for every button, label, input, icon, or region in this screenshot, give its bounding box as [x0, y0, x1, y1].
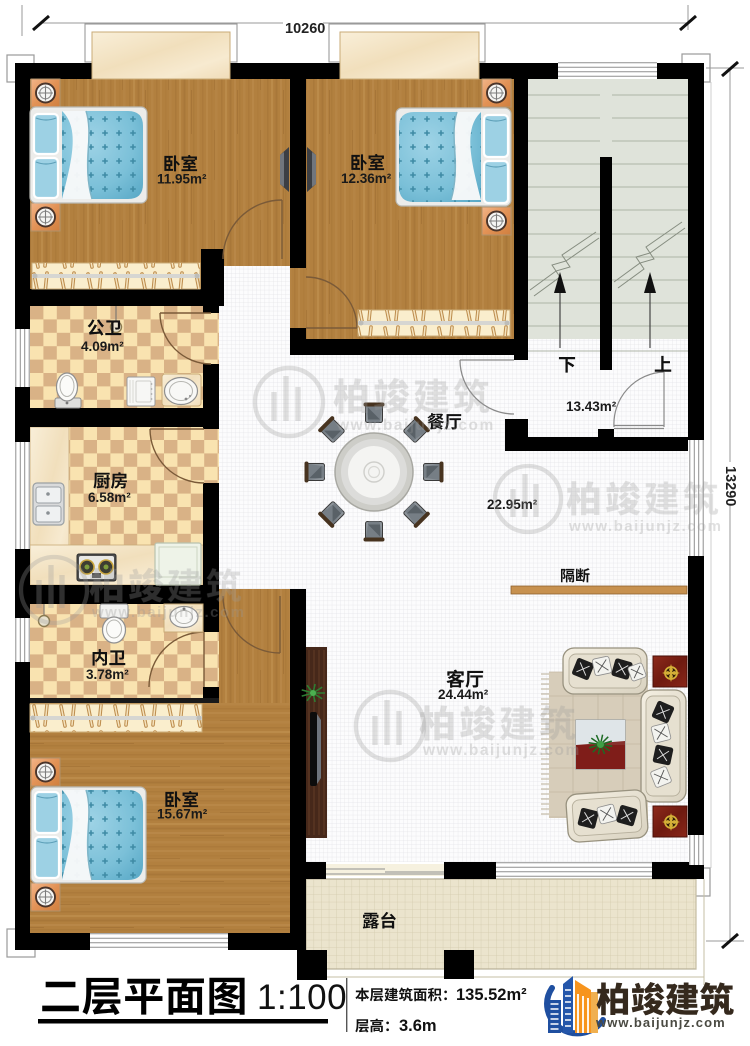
svg-text:6.58m²: 6.58m²	[88, 490, 131, 505]
svg-text:www.baijunjz.com: www.baijunjz.com	[422, 742, 581, 759]
svg-text:12.36m²: 12.36m²	[341, 171, 392, 186]
svg-text:www.baijunjz.com: www.baijunjz.com	[91, 604, 245, 621]
svg-text:10260: 10260	[285, 21, 325, 37]
svg-text:www.baijunjz.com: www.baijunjz.com	[595, 1015, 726, 1030]
svg-text:13.43m²: 13.43m²	[566, 399, 617, 414]
svg-text:135.52m²: 135.52m²	[456, 986, 527, 1004]
svg-text:24.44m²: 24.44m²	[438, 687, 489, 702]
svg-text:11.95m²: 11.95m²	[157, 172, 207, 187]
svg-text:3.6m: 3.6m	[399, 1017, 437, 1035]
svg-text:www.baijunjz.com: www.baijunjz.com	[568, 518, 722, 535]
svg-text:3.78m²: 3.78m²	[86, 667, 129, 682]
svg-text:15.67m²: 15.67m²	[157, 807, 208, 822]
svg-text:13290: 13290	[722, 466, 738, 506]
svg-text:www.baijunjz.com: www.baijunjz.com	[336, 417, 495, 434]
svg-text:4.09m²: 4.09m²	[81, 339, 124, 354]
svg-text:1:100: 1:100	[257, 978, 347, 1017]
